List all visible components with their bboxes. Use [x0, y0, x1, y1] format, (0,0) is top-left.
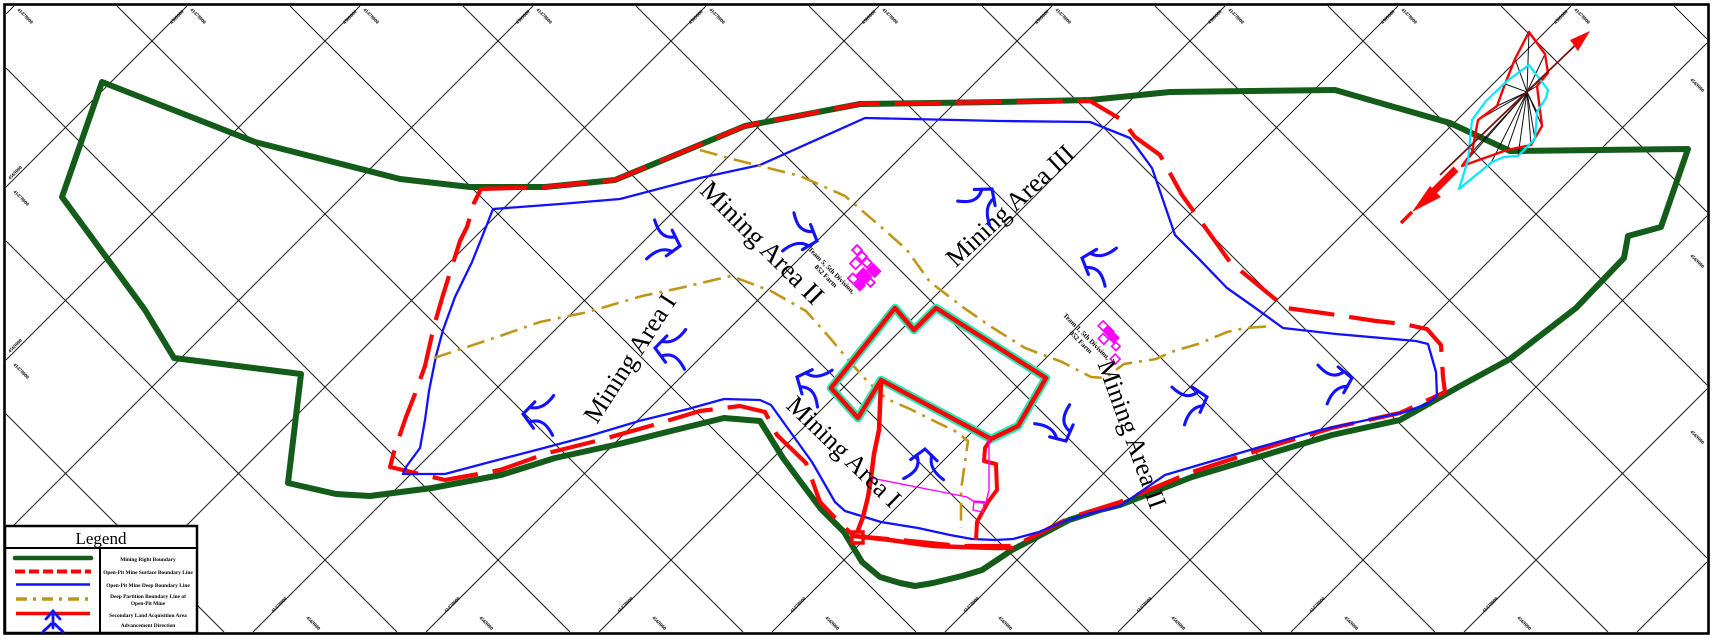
svg-text:Advancement Direction: Advancement Direction — [121, 623, 176, 629]
svg-text:Secondary Land Acquisition Are: Secondary Land Acquisition Area — [109, 613, 187, 619]
svg-text:Open-Pit Mine Surface Boundary: Open-Pit Mine Surface Boundary Line — [103, 570, 193, 576]
svg-text:Mining Right Boundary: Mining Right Boundary — [120, 557, 176, 563]
svg-text:Legend: Legend — [76, 529, 127, 548]
svg-text:Open-Pit Mine Deep Boundary Li: Open-Pit Mine Deep Boundary Line — [106, 583, 190, 589]
svg-text:Deep Partition Boundary Line o: Deep Partition Boundary Line of — [110, 594, 186, 600]
svg-text:Open-Pit Mine: Open-Pit Mine — [131, 601, 166, 607]
